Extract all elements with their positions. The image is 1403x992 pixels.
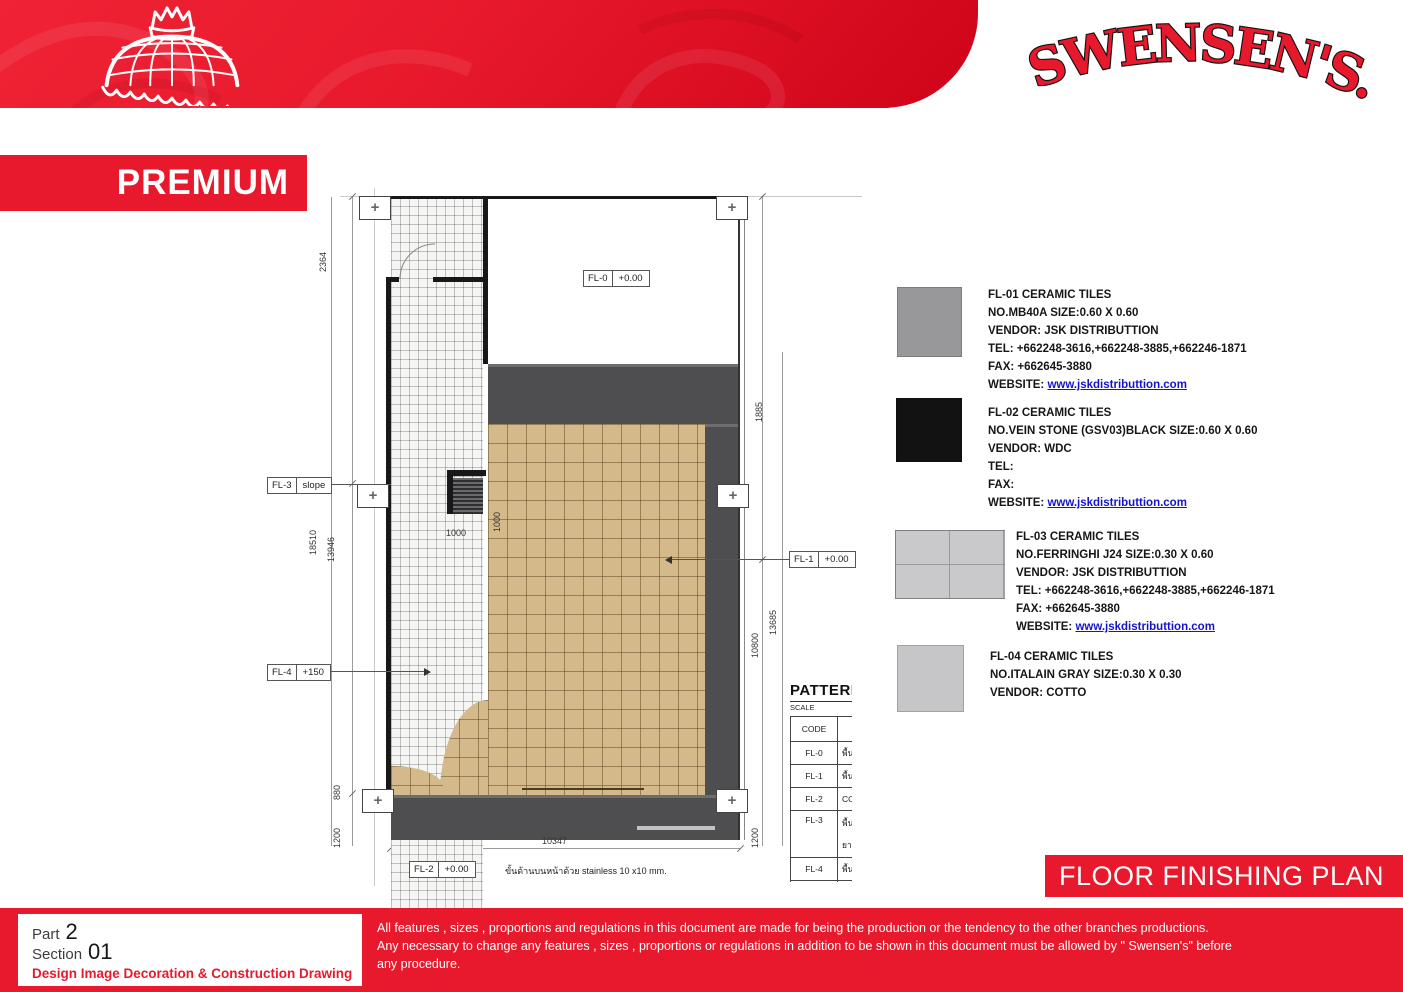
legend-spec: NO.MB40A SIZE:0.60 X 0.60 (988, 304, 1247, 322)
level-label-fl4: FL-4 +150 (267, 664, 331, 681)
sheet-title: FLOOR FINISHING PLAN (1059, 861, 1384, 892)
legend-title: FL-02 CERAMIC TILES (988, 404, 1257, 422)
legend-tel: TEL: (988, 458, 1257, 476)
dim-1885: 1885 (754, 402, 764, 422)
dim-1200-left: 1200 (332, 828, 342, 848)
dark-walkway-bottom (391, 795, 739, 840)
dimension-line (331, 197, 332, 846)
pattern-col-header: CODE (791, 717, 838, 742)
pattern-scale-label: SCALE (790, 701, 852, 712)
legend-item-fl01: FL-01 CERAMIC TILES NO.MB40A SIZE:0.60 X… (988, 286, 1247, 394)
counter-line (522, 788, 644, 790)
column-marker (357, 484, 389, 508)
legend-vendor: VENDOR: JSK DISTRIBUTTION (1016, 564, 1275, 582)
wall-right-inner-line (744, 196, 745, 840)
leader-line-fl3 (322, 484, 391, 485)
level-label-fl2: FL-2 +0.00 (409, 861, 476, 878)
stainless-note: ขั้นด้านบนหน้าด้วย stainless 10 x10 mm. (505, 864, 667, 878)
dim-2364: 2364 (318, 252, 328, 272)
legend-vendor: VENDOR: COTTO (990, 684, 1182, 702)
pattern-row: FL-0 พื้นเดิม (791, 742, 853, 765)
dark-walkway-top (488, 364, 739, 424)
column-marker (362, 789, 394, 813)
column-marker (359, 196, 391, 220)
header-red-band (0, 0, 978, 108)
swensens-lamp-icon (92, 2, 252, 106)
swensens-logo: SWENSEN'S. (1025, 8, 1380, 113)
website-link[interactable]: www.jskdistributtion.com (1047, 379, 1187, 391)
document-page: SWENSEN'S. PREMIUM (0, 0, 1403, 992)
legend-vendor: VENDOR: WDC (988, 440, 1257, 458)
pattern-title: PATTERN (790, 682, 852, 699)
wall-left (386, 277, 391, 800)
dimension-line (352, 197, 353, 846)
section-label: Section (32, 946, 82, 963)
door-jamb (433, 277, 488, 282)
dim-10800: 10800 (750, 633, 760, 658)
pattern-row: FL-3 พื้นSLOยาแนว (791, 811, 853, 858)
legend-fax: FAX: (988, 476, 1257, 494)
legend-item-fl02: FL-02 CERAMIC TILES NO.VEIN STONE (GSV03… (988, 404, 1257, 512)
section-number: 01 (88, 939, 112, 964)
brand-logo-text: SWENSEN'S. (1025, 12, 1380, 110)
svg-text:SWENSEN'S.: SWENSEN'S. (1025, 12, 1380, 110)
pattern-row-empty (791, 881, 853, 883)
fl-value: +0.00 (439, 862, 475, 877)
dim-1000-h: 1000 (446, 528, 466, 538)
scale-bar (637, 826, 715, 830)
door-jamb (390, 277, 399, 282)
dim-13685: 13685 (768, 610, 778, 635)
website-link[interactable]: www.jskdistributtion.com (1075, 621, 1215, 633)
legend-fax: FAX: +662645-3880 (988, 358, 1247, 376)
fl-value: +0.00 (613, 271, 649, 286)
legend-spec: NO.VEIN STONE (GSV03)BLACK SIZE:0.60 X 0… (988, 422, 1257, 440)
door-swing-arc (399, 241, 437, 281)
legend-website: WEBSITE: www.jskdistributtion.com (1016, 618, 1275, 636)
dimension-line (782, 352, 783, 846)
pattern-table: PATTERN SCALE CODE FL-0 พื้นเดิม FL-1 พื… (790, 682, 852, 882)
dim-1000-v: 1000 (492, 512, 502, 532)
fl-code: FL-1 (790, 552, 819, 567)
fl04-tile-swatch (897, 645, 964, 712)
column-marker (716, 789, 748, 813)
leader-line-fl1 (668, 559, 789, 560)
fl-value: +150 (297, 665, 330, 680)
dim-880: 880 (332, 785, 342, 800)
fl-code: FL-2 (410, 862, 439, 877)
legend-fax: FAX: +662645-3880 (1016, 600, 1275, 618)
website-link[interactable]: www.jskdistributtion.com (1047, 497, 1187, 509)
leader-line-fl4 (322, 671, 428, 672)
pattern-row: FL-2 CODE (791, 788, 853, 811)
fl-code: FL-4 (268, 665, 297, 680)
legend-vendor: VENDOR: JSK DISTRIBUTTION (988, 322, 1247, 340)
legend-title: FL-04 CERAMIC TILES (990, 648, 1182, 666)
entrance-mat (453, 478, 483, 514)
pattern-row: FL-4 พื้นปูก (791, 858, 853, 881)
floor-plan: FL-0 +0.00 FL-1 +0.00 FL-2 +0.00 FL-3 sl… (0, 120, 880, 910)
pattern-row: FL-1 พื้นปูป (791, 765, 853, 788)
footer-subtitle: Design Image Decoration & Construction D… (32, 966, 348, 981)
fl-code: FL-0 (584, 271, 613, 286)
footer-bar: Part2 Section01 Design Image Decoration … (0, 908, 1403, 992)
fl01-tile-swatch (897, 287, 962, 357)
legend-item-fl04: FL-04 CERAMIC TILES NO.ITALAIN GRAY SIZE… (990, 648, 1182, 702)
level-label-fl1: FL-1 +0.00 (789, 551, 856, 568)
dim-tick (737, 845, 744, 852)
level-label-fl0: FL-0 +0.00 (583, 270, 650, 287)
column-marker (716, 196, 748, 220)
extension-line (374, 188, 375, 886)
wall-top (390, 196, 740, 199)
fl03-tile-swatch (895, 530, 1005, 599)
legend-tel: TEL: +662248-3616,+662248-3885,+662246-1… (1016, 582, 1275, 600)
dim-1200-right: 1200 (750, 828, 760, 848)
dining-tile-floor-fl1 (488, 424, 705, 795)
legend-spec: NO.FERRINGHI J24 SIZE:0.30 X 0.60 (1016, 546, 1275, 564)
wall-right (738, 196, 740, 840)
sheet-title-banner: FLOOR FINISHING PLAN (1045, 855, 1403, 897)
legend-title: FL-03 CERAMIC TILES (1016, 528, 1275, 546)
mat-frame (450, 470, 486, 476)
footer-part-card: Part2 Section01 Design Image Decoration … (18, 914, 362, 986)
dim-10347: 10347 (542, 836, 567, 846)
fl-value: slope (297, 478, 332, 493)
disclaimer-text: All features , sizes , proportions and r… (377, 919, 1387, 973)
dim-18510: 18510 (308, 530, 318, 555)
fl-code: FL-3 (268, 478, 297, 493)
legend-website: WEBSITE: www.jskdistributtion.com (988, 376, 1247, 394)
dimension-line (762, 197, 763, 846)
column-marker (717, 484, 749, 508)
legend-item-fl03: FL-03 CERAMIC TILES NO.FERRINGHI J24 SIZ… (1016, 528, 1275, 636)
fl02-tile-swatch (896, 398, 962, 462)
legend-spec: NO.ITALAIN GRAY SIZE:0.30 X 0.30 (990, 666, 1182, 684)
legend-website: WEBSITE: www.jskdistributtion.com (988, 494, 1257, 512)
legend-tel: TEL: +662248-3616,+662248-3885,+662246-1… (988, 340, 1247, 358)
dim-13946: 13946 (326, 537, 336, 562)
legend-title: FL-01 CERAMIC TILES (988, 286, 1247, 304)
level-label-fl3: FL-3 slope (267, 477, 332, 494)
pattern-code-table: CODE FL-0 พื้นเดิม FL-1 พื้นปูป FL-2 COD… (790, 716, 852, 882)
fl-value: +0.00 (819, 552, 855, 567)
